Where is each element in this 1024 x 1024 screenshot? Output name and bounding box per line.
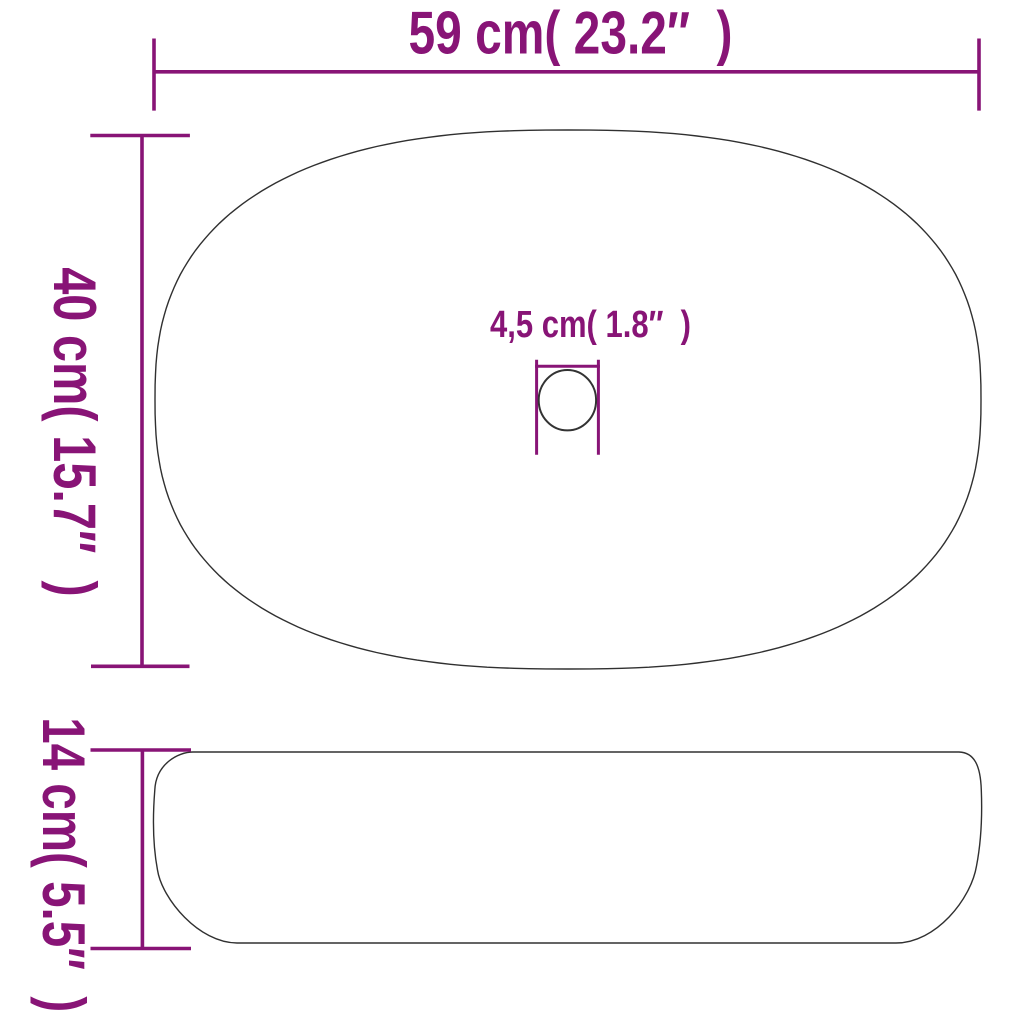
svg-text:59 cm( 23.2″ ): 59 cm( 23.2″ ) xyxy=(409,0,733,67)
svg-text:14 cm( 5.5″ ): 14 cm( 5.5″ ) xyxy=(30,717,97,1012)
svg-text:4,5 cm( 1.8″ ): 4,5 cm( 1.8″ ) xyxy=(490,304,691,346)
svg-text:40 cm( 15.7″ ): 40 cm( 15.7″ ) xyxy=(41,267,108,597)
